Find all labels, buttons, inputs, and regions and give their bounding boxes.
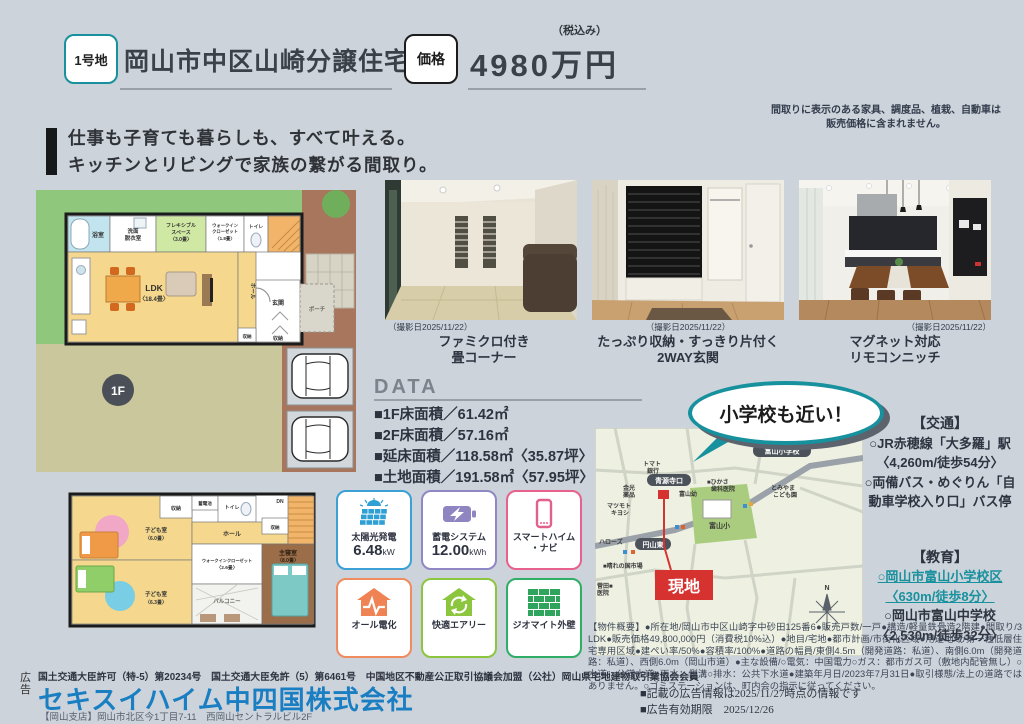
label-kids2-size: 〈6.3畳〉: [145, 599, 167, 606]
map-label-matsu1: マツモト: [607, 503, 631, 510]
access-info: 【交通】 ○JR赤穂線「大多羅」駅 〈4,260m/徒歩54分〉 ○両備バス・め…: [858, 414, 1022, 645]
label-wic3: 〈1.8畳〉: [215, 235, 235, 242]
photo-caption-2: （撮影日2025/11/22） たっぷり収納・すっきり片付く2WAY玄関: [592, 321, 784, 366]
flyer-page: 1号地 岡山市中区山崎分譲住宅 価格 （税込み） 4980万円 間取りに表示のあ…: [0, 0, 1024, 724]
label-porch: ポーチ: [309, 305, 326, 313]
range-hood: [857, 194, 897, 216]
map-label-school: 富山小学校: [765, 447, 801, 456]
photo-2way-entry: [592, 180, 784, 320]
data-item-1f-area: ■1F床面積／61.42㎡: [374, 405, 594, 426]
label-toilet: トイレ: [249, 224, 264, 230]
map-label-clinic2: 医院: [597, 589, 609, 597]
transport-line1: ○JR赤穂線「大多羅」駅: [858, 434, 1022, 454]
solar-value: 6.48: [353, 542, 382, 559]
price-value: 4980万円: [470, 40, 619, 85]
furniture-disclaimer: 間取りに表示のある家具、調度品、植栽、自動車は 販売価格に含まれません。: [762, 104, 1010, 132]
caption1-line1: ファミクロ付き: [438, 334, 529, 349]
floorplan-1f: 浴室 洗面 脱衣室 フレキシブル スペース 〈3.0畳〉 ウォークイン クローゼ…: [34, 188, 358, 474]
map-label-kodomo2: こども園: [773, 491, 797, 499]
label-kids1-size: 〈6.0畳〉: [145, 535, 167, 542]
label-storage-2fb: 収納: [271, 524, 280, 531]
navi-label-line1: スマートハイム: [513, 532, 575, 542]
transport-line2: 〈4,260m/徒歩54分〉: [858, 453, 1022, 473]
label-bath: 浴室: [92, 231, 104, 239]
label-master-size: 〈8.0畳〉: [277, 557, 299, 564]
kitchen-floor: [799, 300, 991, 320]
education-title: 【教育】: [858, 548, 1022, 568]
battery-icon: [438, 498, 480, 530]
map-label-kodomo1: とみやま: [771, 484, 795, 492]
label-ldk: LDK: [145, 283, 163, 293]
map-label-busstop1: 青源寺口: [655, 476, 683, 485]
ad-info-line1: ■記載の広告情報は2025/11/27時点の情報です: [640, 686, 861, 702]
air-circulation-house-icon: [438, 586, 480, 618]
wall-label: ジオマイト外壁: [512, 620, 575, 631]
data-section-title: DATA: [374, 376, 439, 399]
caption2-line2: 2WAY玄関: [657, 350, 719, 365]
navi-label-line2: ・ナビ: [530, 543, 557, 553]
photo-date-3: （撮影日2025/11/22）: [799, 321, 991, 333]
label-wash1: 洗面: [127, 227, 139, 235]
shoe-cabinet: [626, 186, 702, 278]
photo-kitchen-niche: [799, 180, 991, 320]
data-item-total-area: ■延床面積／118.58㎡〈35.87坪〉: [374, 447, 594, 468]
open-closet: [708, 188, 742, 280]
equipment-grid: 太陽光発電 6.48kW 蓄電システム 12.00kWh スマートハイム・ナビ …: [336, 490, 590, 658]
label-kids2: 子ども室: [145, 590, 168, 598]
label-storage-2fa: 収納: [171, 505, 181, 512]
feature-card-battery: 蓄電システム 12.00kWh: [421, 490, 497, 570]
map-label-clinic1: 菅田■: [597, 582, 613, 590]
brick-wall-icon: [523, 586, 565, 618]
disclaimer-line2: 販売価格に含まれません。: [826, 119, 946, 130]
feature-card-wall: ジオマイト外壁: [506, 578, 582, 658]
magnet-niche-panel: [953, 198, 987, 276]
label-kids1: 子ども室: [145, 526, 168, 534]
tagline: 仕事も子育ても暮らしも、すべて叶える。 キッチンとリビングで家族の繋がる間取り。: [68, 125, 438, 179]
tagline-accent-bar: [46, 128, 57, 175]
label-flex1: フレキシブル: [166, 222, 196, 229]
ad-info-line2: ■広告有効期限 2025/12/26: [640, 702, 861, 718]
label-wic1: ウォークイン: [212, 222, 238, 229]
data-item-2f-area: ■2F床面積／57.16㎡: [374, 426, 594, 447]
map-label-bank2: 銀行: [647, 467, 659, 475]
ad-char-1: 広: [20, 672, 31, 684]
transport-line4: 動車学校入り口」バス停: [858, 492, 1022, 512]
caption3-line2: リモコンニッチ: [849, 350, 940, 365]
map-label-bank1: トマト: [643, 461, 661, 468]
photo-date-1: （撮影日2025/11/22）: [388, 321, 580, 333]
label-battery: 蓄電池: [198, 500, 212, 507]
caption3-line1: マグネット対応: [849, 334, 940, 349]
disclaimer-line1: 間取りに表示のある家具、調度品、植栽、自動車は: [771, 105, 1001, 116]
school-nearby-bubble: 小学校も近い！: [688, 381, 884, 445]
car-1: [292, 354, 348, 398]
photo-caption-3: （撮影日2025/11/22） マグネット対応リモコンニッチ: [799, 321, 991, 366]
map-label-school-area: 富山小: [709, 521, 730, 530]
feature-card-all-electric: オール電化: [336, 578, 412, 658]
tagline-line1: 仕事も子育ても暮らしも、すべて叶える。: [68, 125, 438, 152]
map-label-busstop2: 円山東: [643, 540, 665, 549]
map-label-kinder: 富山幼: [679, 490, 697, 498]
label-flex2: スペース: [171, 230, 190, 236]
ad-char-2: 告: [20, 684, 31, 696]
map-label-dental2: 歯科医院: [711, 485, 735, 493]
tax-note: （税込み）: [552, 22, 607, 38]
site-label: 現地: [668, 577, 700, 596]
price-label-badge: 価格: [404, 34, 458, 84]
battery-value: 12.00: [432, 542, 470, 559]
data-item-land-area: ■土地面積／191.58㎡〈57.95坪〉: [374, 468, 594, 489]
all-electric-label: オール電化: [351, 620, 396, 631]
label-storage-a: 収納: [243, 333, 252, 340]
label-wash2: 脱衣室: [125, 234, 142, 242]
ad-validity-info: ■記載の広告情報は2025/11/27時点の情報です ■広告有効期限 2025/…: [640, 686, 861, 718]
caption2-line1: たっぷり収納・すっきり片付く: [597, 334, 778, 349]
label-entrance: 玄関: [272, 299, 284, 307]
branch-address: 【岡山支店】岡山市北区今1丁目7-11 西岡山セントラルビル2F: [40, 709, 312, 723]
sofa: [523, 254, 577, 312]
label-flex3: 〈3.0畳〉: [170, 236, 192, 243]
kitchen-cabinets: [849, 216, 937, 250]
caption1-line2: 畳コーナー: [451, 350, 516, 365]
ad-vertical-label: 広 告: [20, 672, 31, 696]
data-items: ■1F床面積／61.42㎡ ■2F床面積／57.16㎡ ■延床面積／118.58…: [374, 405, 594, 489]
label-wic-2f-size: 〈2.6畳〉: [216, 564, 237, 571]
map-label-market: ■晴れの国市場: [603, 562, 643, 570]
entry-door: [746, 184, 780, 302]
label-dn: DN: [276, 499, 284, 505]
label-hall-2f: ホール: [223, 531, 241, 538]
label-ldk-size: 〈18.4畳〉: [139, 295, 169, 303]
feature-card-navi: スマートハイム・ナビ: [506, 490, 582, 570]
photo-date-2: （撮影日2025/11/22）: [592, 321, 784, 333]
photo-tatami-corner: [385, 180, 577, 320]
solar-panel-icon: [353, 498, 395, 530]
education-school-distance[interactable]: 〈630m/徒歩8分〉: [858, 587, 1022, 607]
garden-bush: [322, 190, 350, 218]
photo-caption-1: （撮影日2025/11/22） ファミクロ付き畳コーナー: [388, 321, 580, 366]
map-label-matsu2: キヨシ: [611, 510, 629, 517]
airy-label: 快適エアリー: [432, 620, 486, 631]
feature-card-solar: 太陽光発電 6.48kW: [336, 490, 412, 570]
all-electric-house-icon: [353, 586, 395, 618]
car-2: [292, 417, 348, 461]
label-balcony: バルコニー: [213, 598, 241, 605]
map-label-pharm1: 金光: [622, 484, 635, 492]
label-storage-b: 収納: [273, 335, 283, 342]
transport-line3: ○両備バス・めぐりん「自: [858, 473, 1022, 493]
map-label-hellows: ハローズ: [599, 538, 623, 546]
navi-label: スマートハイム・ナビ: [513, 532, 575, 554]
data-underline: [374, 399, 642, 401]
education-school-link[interactable]: ○岡山市富山小学校区: [858, 567, 1022, 587]
title-underline: [120, 88, 392, 90]
page-title: 岡山市中区山崎分譲住宅: [124, 42, 410, 78]
smartphone-icon: [523, 498, 565, 530]
school-building: [703, 500, 731, 518]
battery-unit: kWh: [469, 547, 486, 557]
compass-n-label: N: [824, 585, 829, 592]
map-label-dental1: ■ひかさ: [707, 478, 729, 486]
label-toilet-2f: トイレ: [224, 505, 239, 511]
floorplan-2f: 子ども室 〈6.0畳〉 子ども室 〈6.3畳〉 収納 蓄電池 トイレ ホール ウ…: [60, 476, 326, 666]
floor-badge-1f: 1F: [111, 384, 125, 398]
label-hall: ホール: [249, 283, 256, 300]
map-label-pharm2: 薬品: [622, 491, 635, 499]
feature-card-airy: 快適エアリー: [421, 578, 497, 658]
label-wic-2f: ウォークインクローゼット: [202, 557, 252, 564]
label-master: 主寝室: [279, 549, 297, 557]
price-underline: [468, 88, 646, 90]
label-wic2: クローゼット: [212, 228, 238, 235]
solar-unit: kW: [382, 547, 394, 557]
lot-number-badge: 1号地: [64, 34, 118, 84]
tagline-line2: キッチンとリビングで家族の繋がる間取り。: [68, 152, 438, 179]
yard-khaki: [36, 344, 282, 472]
